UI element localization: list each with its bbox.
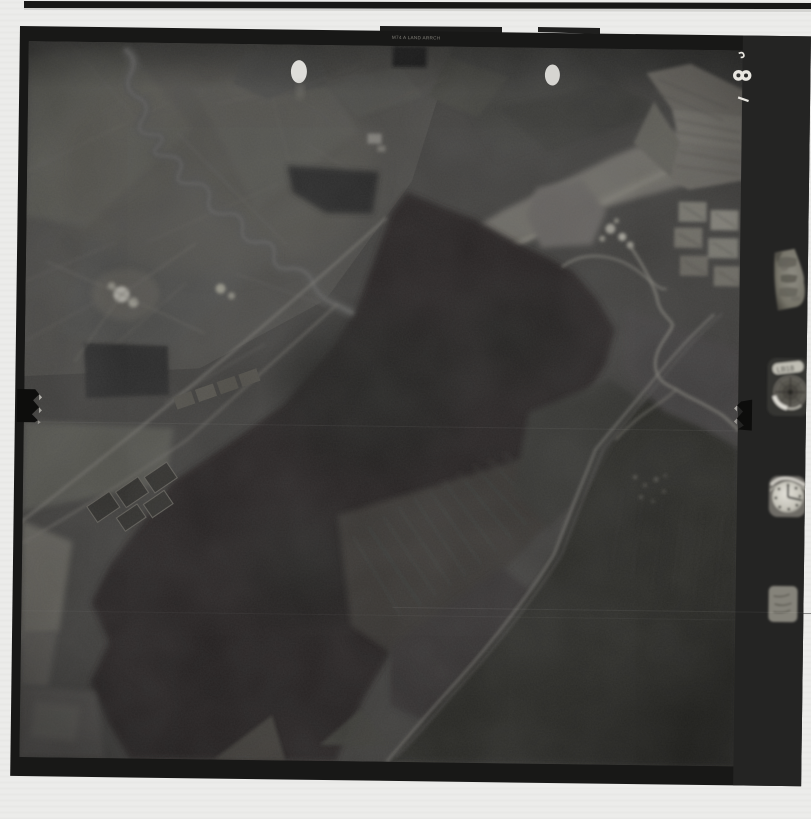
- svg-text:LB18: LB18: [776, 364, 794, 375]
- svg-text:M74 A LAND ARRCH: M74 A LAND ARRCH: [392, 35, 441, 41]
